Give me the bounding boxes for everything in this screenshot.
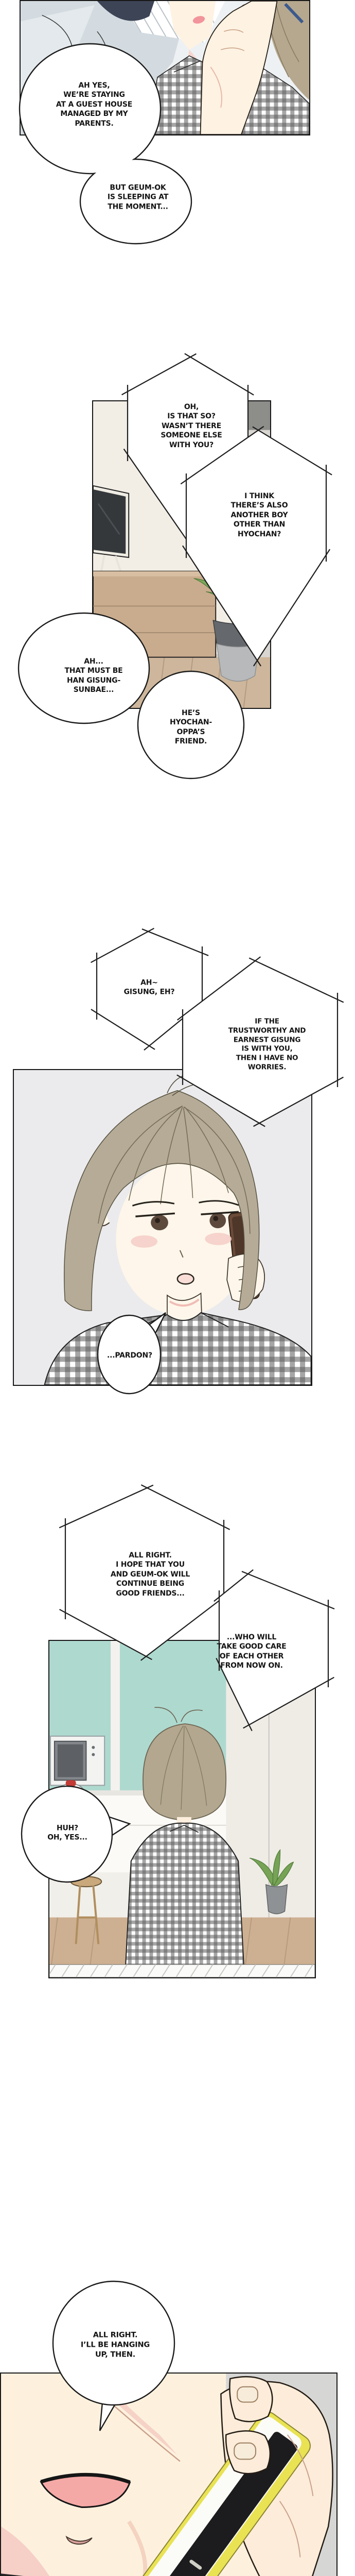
panel-kitchen-back [48,1640,316,1978]
panel-bedroom-call [20,0,310,135]
speech-h4: IF THE TRUSTWORTHY AND EARNEST GISUNG IS… [228,1018,306,1073]
panel-kitchen-back-artwork [49,1641,315,1977]
speech-b2: BUT GEUM-OK IS SLEEPING AT THE MOMENT... [108,183,168,211]
panel-livingroom [92,400,271,709]
panel-girl-phone [13,1069,312,1386]
speech-h3: AH~ GISUNG, EH? [124,978,175,997]
panel-livingroom-artwork [93,401,270,708]
panel-smile-closeup [0,2372,338,2576]
panel-girl-phone-artwork [14,1070,311,1385]
speech-b4: HE’S HYOCHAN- OPPA’S FRIEND. [170,708,212,747]
panel-smile-closeup-artwork [1,2374,336,2576]
speech-h5: ALL RIGHT. I HOPE THAT YOU AND GEUM-OK W… [111,1551,190,1598]
webtoon-page: AH YES, WE’RE STAYING AT A GUEST HOUSE M… [0,0,355,2576]
panel-bedroom-call-artwork [21,1,309,134]
speech-b7: ALL RIGHT. I’LL BE HANGING UP, THEN. [81,2330,150,2360]
